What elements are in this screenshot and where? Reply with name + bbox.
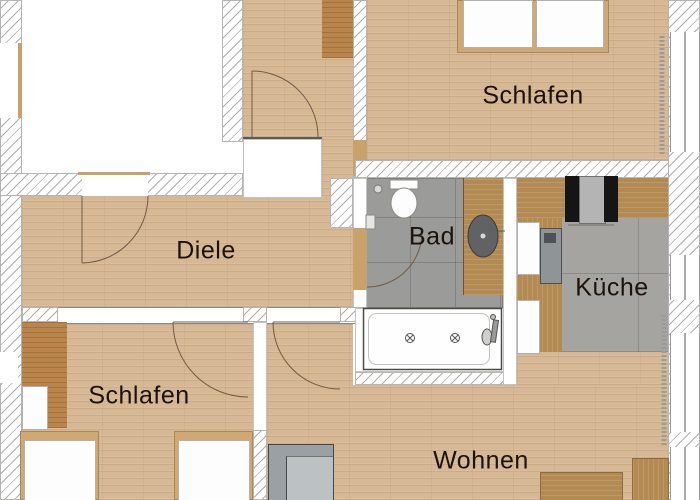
window-left-lower <box>0 352 18 383</box>
bad-kueche-wall <box>503 178 517 385</box>
diele-bottom-wall-hatch-2 <box>243 307 267 322</box>
sofa-seat <box>286 456 333 500</box>
sideboard <box>632 458 669 500</box>
bathtub-zone <box>355 308 505 372</box>
double-bed-mattress-right <box>536 0 604 48</box>
floorplan: Schlafen Diele Bad Küche Schlafen Wohnen <box>0 0 700 500</box>
diele-bottom-wall <box>22 307 367 324</box>
wardrobe-corridor <box>322 0 353 58</box>
window-right-3 <box>670 333 700 432</box>
bad-door-threshold <box>353 228 367 290</box>
room-wohnen-floor-upper <box>517 352 668 385</box>
double-bed-mattress-left <box>463 0 533 48</box>
stove-left-panel <box>565 176 579 222</box>
stove-base-line <box>568 224 614 226</box>
room-label-bad: Bad <box>409 223 455 252</box>
kitchen-cabinet-1 <box>517 222 540 275</box>
whiteroom-door-threshold <box>78 172 150 175</box>
schlafen-kueche-top-wall <box>355 160 700 178</box>
room-label-wohnen: Wohnen <box>433 447 529 476</box>
window-left-frame <box>18 43 22 118</box>
stove-right-panel <box>604 176 618 222</box>
whiteroom-right-wall <box>222 0 243 142</box>
window-right-2 <box>670 255 700 300</box>
stove-icon <box>579 176 606 224</box>
corridor-bottom-left-wall-hatch <box>253 430 267 500</box>
room-label-schlafen-top: Schlafen <box>482 82 583 111</box>
window-right-1 <box>670 32 700 152</box>
bath-bottom-wall <box>355 372 505 385</box>
room-label-kueche: Küche <box>575 274 648 303</box>
whiteroom-door-opening <box>82 173 148 196</box>
bath-vanity-counter <box>463 178 504 295</box>
single-bed-1-mattress <box>24 440 96 500</box>
kitchen-cabinet-2 <box>517 300 540 354</box>
corridor-wall-mass <box>243 137 322 198</box>
room-label-diele: Diele <box>176 237 235 266</box>
window-right-4 <box>670 447 700 500</box>
bad-corner-wall-chunk <box>330 178 353 228</box>
room-label-schlafen-bottom: Schlafen <box>88 382 189 411</box>
wardrobe-niche <box>22 386 48 430</box>
diele-bottom-wall-hatch-1 <box>22 307 58 322</box>
single-bed-2-mattress <box>178 440 250 500</box>
kitchen-sink-basin <box>544 233 556 243</box>
dining-table <box>540 472 623 500</box>
